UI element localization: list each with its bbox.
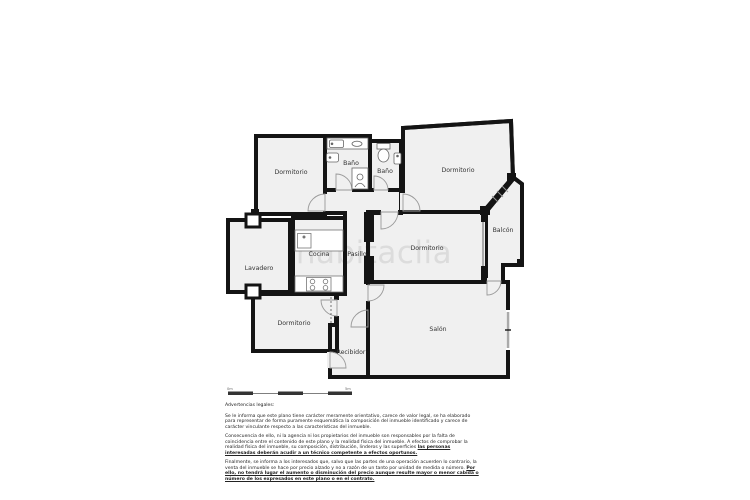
bidet-icon	[327, 153, 339, 162]
floor-plan: habitaclia	[222, 50, 528, 395]
basin-icon	[352, 141, 362, 146]
label-dormitorio-bl: Dormitorio	[278, 320, 311, 327]
legal-p3-text: Finalmente, se informa a los interesados…	[225, 460, 477, 471]
label-recibidor: Recibidor	[337, 349, 366, 356]
shower-figure-head	[357, 174, 363, 180]
label-dormitorio-tl: Dormitorio	[275, 169, 308, 176]
label-balcon: Balcón	[493, 226, 514, 234]
faucet-icon	[331, 143, 333, 145]
scale-start-label: 0m	[227, 387, 233, 391]
label-lavadero: Lavadero	[245, 265, 274, 272]
label-pasillo: Pasillo	[347, 251, 367, 258]
toilet-tank-icon	[377, 144, 390, 150]
label-salon: Salón	[429, 325, 446, 333]
legal-paragraph-3: Finalmente, se informa a los interesados…	[225, 460, 479, 482]
small-sink-icon	[394, 153, 401, 164]
legal-paragraph-1: Se le informa que este plano tiene carác…	[225, 414, 479, 431]
label-bano-1: Baño	[343, 160, 359, 167]
kitchen-faucet-icon	[303, 236, 305, 238]
floorplan-page: habitaclia	[0, 0, 750, 500]
scale-end-label: 5m	[345, 387, 351, 391]
legal-disclaimer: Advertencias legales: Se le informa que …	[225, 403, 479, 486]
legal-paragraph-2: Consecuencia de ello, ni la agencia ni l…	[225, 434, 479, 456]
label-dormitorio-centro: Dormitorio	[411, 245, 444, 252]
legal-title: Advertencias legales:	[225, 403, 479, 409]
toilet-bowl-icon	[378, 149, 389, 162]
label-bano-2: Baño	[377, 168, 393, 175]
scale-bar: 0m 5m	[227, 387, 352, 395]
label-dormitorio-tr: Dormitorio	[442, 167, 475, 174]
label-cocina: Cocina	[309, 251, 330, 258]
